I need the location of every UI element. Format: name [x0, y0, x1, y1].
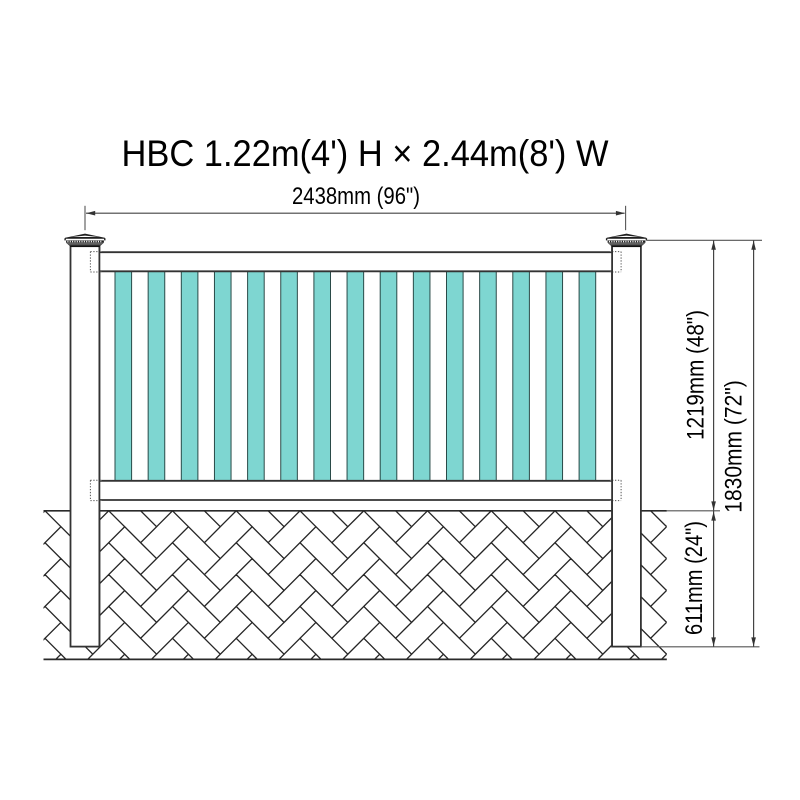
svg-text:611mm (24"): 611mm (24"): [681, 521, 708, 635]
svg-text:1830mm (72"): 1830mm (72"): [721, 380, 748, 513]
svg-text:1219mm (48"): 1219mm (48"): [683, 310, 710, 440]
svg-text:HBC 1.22m(4') H × 2.44m(8') W: HBC 1.22m(4') H × 2.44m(8') W: [122, 133, 609, 174]
svg-text:2438mm (96"): 2438mm (96"): [292, 183, 420, 210]
